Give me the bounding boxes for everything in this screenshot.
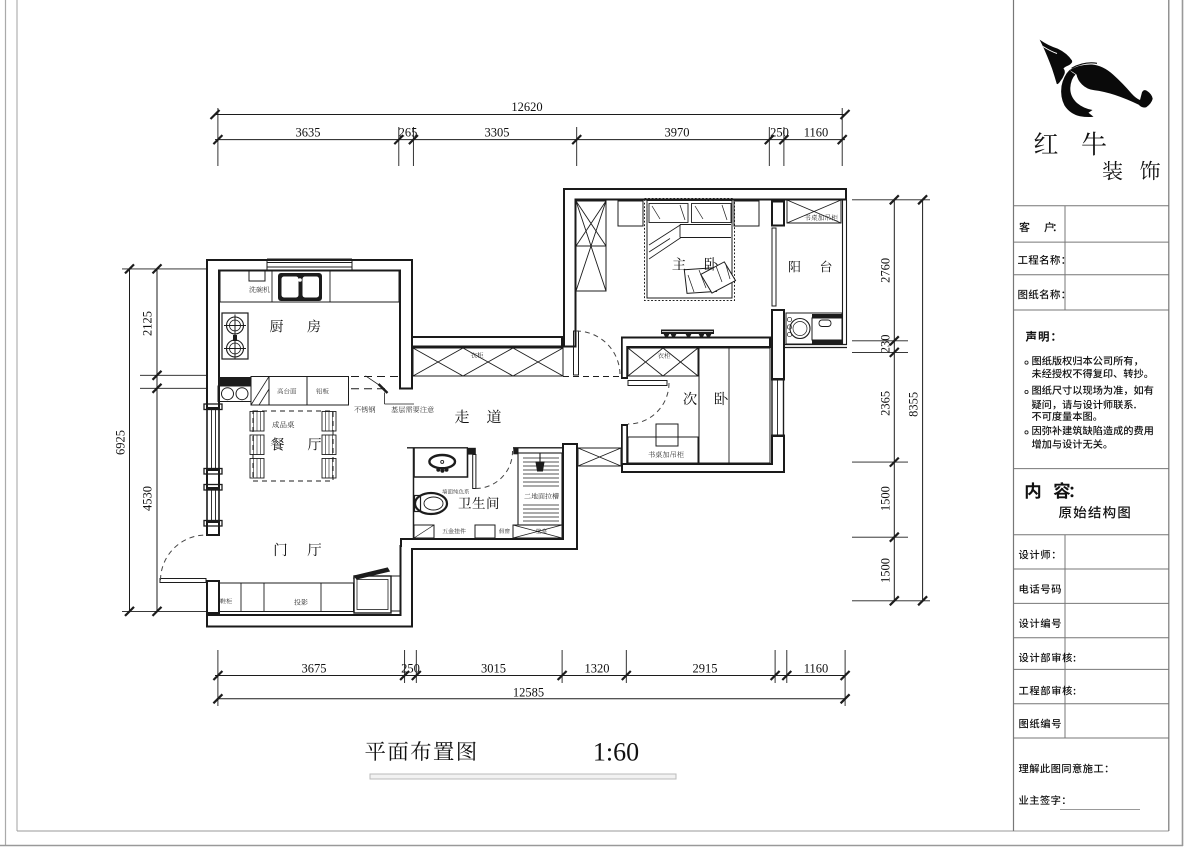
svg-text:1320: 1320 (585, 662, 610, 676)
svg-text:8355: 8355 (907, 392, 921, 417)
svg-text:12585: 12585 (513, 686, 544, 700)
svg-text:2915: 2915 (693, 662, 718, 676)
svg-text:3635: 3635 (296, 126, 321, 140)
svg-text:2365: 2365 (879, 391, 893, 416)
svg-text:1160: 1160 (804, 126, 829, 140)
svg-text:1500: 1500 (879, 486, 893, 511)
svg-text:3305: 3305 (485, 126, 510, 140)
svg-text:1:60: 1:60 (593, 738, 639, 767)
svg-text:6925: 6925 (114, 430, 128, 455)
svg-text:3970: 3970 (665, 126, 690, 140)
svg-text:1160: 1160 (804, 662, 829, 676)
svg-text:265: 265 (399, 126, 418, 140)
svg-text:12620: 12620 (511, 100, 542, 114)
svg-text:230: 230 (879, 335, 893, 354)
svg-text:2125: 2125 (141, 311, 155, 336)
svg-text:4530: 4530 (141, 486, 155, 511)
svg-text:250: 250 (770, 126, 789, 140)
svg-text:3015: 3015 (481, 662, 506, 676)
svg-text:2760: 2760 (879, 258, 893, 283)
svg-text:1500: 1500 (879, 558, 893, 583)
svg-text:250: 250 (401, 662, 420, 676)
svg-text:3675: 3675 (302, 662, 327, 676)
